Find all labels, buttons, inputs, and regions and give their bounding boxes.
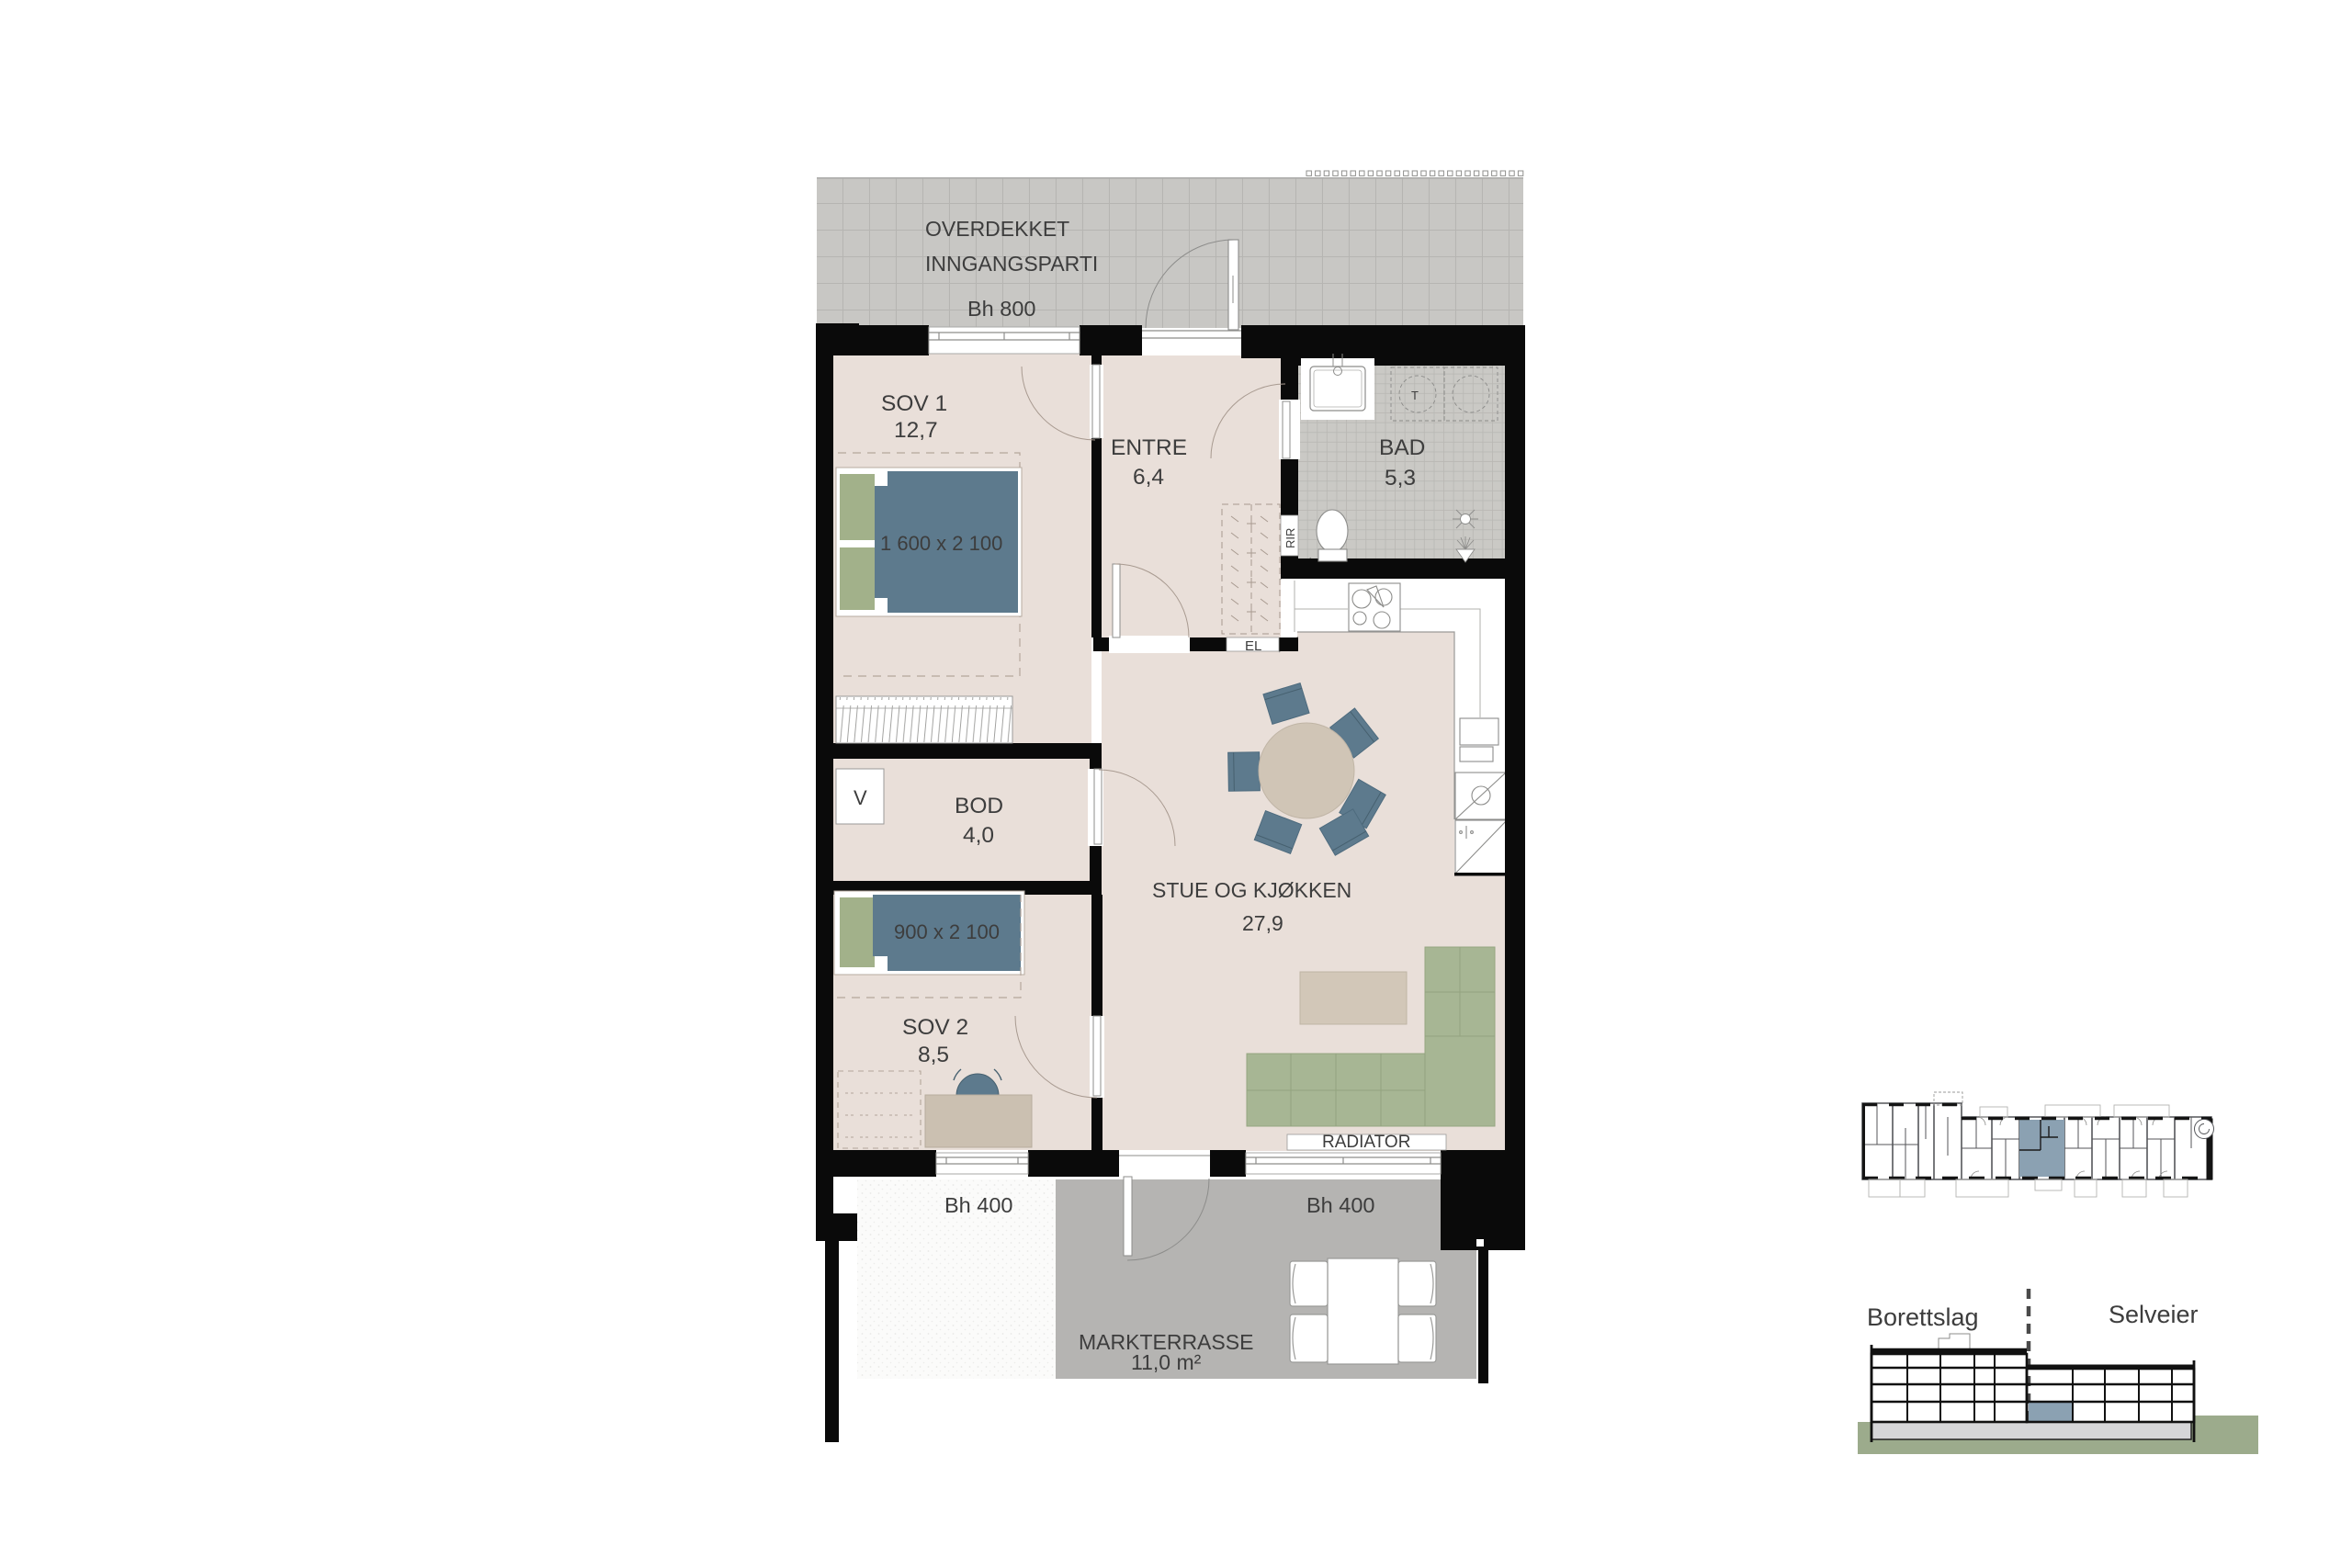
svg-text:900 x 2 100: 900 x 2 100 [894, 920, 1000, 943]
svg-text:4,0: 4,0 [963, 823, 994, 848]
svg-text:12,7: 12,7 [894, 418, 938, 443]
svg-text:BAD: BAD [1379, 435, 1425, 460]
svg-text:Bh 800: Bh 800 [967, 297, 1035, 321]
svg-text:STUE OG KJØKKEN: STUE OG KJØKKEN [1152, 878, 1351, 902]
svg-text:Bh 400: Bh 400 [1306, 1193, 1374, 1217]
svg-text:27,9: 27,9 [1242, 911, 1283, 935]
svg-text:INNGANGSPARTI: INNGANGSPARTI [925, 252, 1098, 276]
svg-text:Bh 400: Bh 400 [944, 1193, 1012, 1217]
svg-text:Selveier: Selveier [2109, 1301, 2199, 1328]
svg-text:SOV 1: SOV 1 [881, 391, 947, 416]
svg-text:BOD: BOD [955, 794, 1003, 818]
svg-text:RIR: RIR [1283, 528, 1297, 548]
svg-text:T: T [1411, 389, 1419, 402]
svg-text:5,3: 5,3 [1385, 466, 1416, 491]
svg-text:RADIATOR: RADIATOR [1322, 1133, 1410, 1152]
svg-text:SOV 2: SOV 2 [902, 1015, 968, 1040]
svg-text:OVERDEKKET: OVERDEKKET [925, 217, 1069, 241]
svg-text:V: V [854, 786, 867, 809]
svg-text:1 600 x 2 100: 1 600 x 2 100 [880, 532, 1002, 555]
svg-text:Borettslag: Borettslag [1867, 1303, 1979, 1331]
svg-text:11,0 m²: 11,0 m² [1131, 1350, 1202, 1374]
svg-text:EL: EL [1245, 638, 1261, 654]
svg-text:6,4: 6,4 [1133, 465, 1164, 490]
svg-text:8,5: 8,5 [918, 1043, 949, 1067]
svg-text:ENTRE: ENTRE [1111, 435, 1187, 460]
